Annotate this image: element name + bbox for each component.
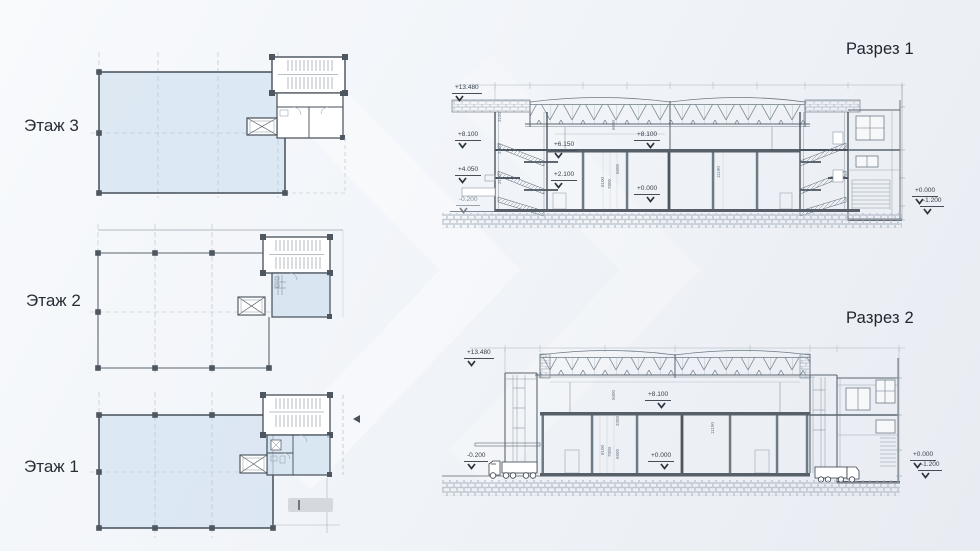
stairwell <box>260 234 333 276</box>
elevation-mark: +0.000 <box>648 453 674 470</box>
right-stair-tower <box>800 112 848 216</box>
dim-label: 6000 <box>611 120 616 130</box>
footprint-dashed <box>285 138 345 193</box>
stairwell <box>269 54 348 96</box>
dim-label: 3150 <box>497 112 502 122</box>
section-1-title: Разрез 1 <box>846 40 914 59</box>
elevation-mark: +13.480 <box>464 350 494 367</box>
elevation-value: -0.200 <box>456 197 480 206</box>
dim-label: 11190 <box>710 422 715 434</box>
elevation-value: +8.100 <box>634 132 660 141</box>
right-annex <box>848 100 902 221</box>
dim-label: 5000 <box>611 390 616 400</box>
annex-rooms <box>267 435 332 477</box>
elevation-value: +2.100 <box>551 172 577 181</box>
roof-truss <box>535 351 815 379</box>
annex-rooms <box>277 91 345 140</box>
truck-plan <box>288 498 333 512</box>
elevator-shaft <box>247 118 277 135</box>
elevator-shaft <box>238 297 265 315</box>
right-dim-line <box>896 358 902 483</box>
dim-label: 8100 <box>600 177 605 187</box>
elevation-mark: -0.200 <box>464 453 488 470</box>
dim-label: 3150 <box>497 144 502 154</box>
elevator-shaft <box>240 455 267 473</box>
elevation-value: +8.100 <box>645 392 671 401</box>
dim-label: 3150 <box>497 174 502 184</box>
section-1-drawing <box>440 80 980 235</box>
floor-3-label: Этаж 3 <box>24 116 79 136</box>
drawing-sheet: Этаж 3 Этаж 2 Этаж 1 <box>0 0 980 551</box>
elevation-mark: +0.000 <box>634 186 660 203</box>
elevation-mark: -0.200 <box>456 197 480 214</box>
elevation-value: -1.200 <box>918 462 942 471</box>
elevation-mark: +8.100 <box>455 132 481 149</box>
right-annex <box>837 358 900 484</box>
elevation-value: +8.100 <box>455 132 481 141</box>
elevation-mark: +13.480 <box>452 85 482 102</box>
elevation-mark: +8.100 <box>634 132 660 149</box>
floor-1-plan <box>88 388 368 543</box>
dim-label: 3300 <box>615 416 620 426</box>
elevation-mark: +6.150 <box>551 142 577 159</box>
floor-2-label: Этаж 2 <box>26 291 81 311</box>
annex-room <box>272 270 332 319</box>
elevation-value: +13.480 <box>452 85 482 94</box>
dim-label: 6600 <box>615 164 620 174</box>
dim-label: 6600 <box>615 449 620 459</box>
right-tower <box>810 375 837 476</box>
elevation-mark: +8.100 <box>645 392 671 409</box>
roof-truss <box>525 98 810 128</box>
dim-label: 7800 <box>607 447 612 457</box>
hall-structure <box>547 127 800 210</box>
elevation-value: +0.000 <box>910 452 936 461</box>
elevation-mark: +4.050 <box>455 167 481 184</box>
elevation-mark: -1.200 <box>920 198 944 215</box>
elevation-value: +13.480 <box>464 350 494 359</box>
dim-label: 8100 <box>600 445 605 455</box>
floor-3-plan <box>88 50 358 202</box>
ground <box>442 209 902 228</box>
elevation-value: -0.200 <box>464 453 488 462</box>
section-2-drawing <box>440 330 980 510</box>
section-cut-marker-icon <box>353 415 360 423</box>
stairwell <box>260 392 333 438</box>
elevation-value: +0.000 <box>912 188 938 197</box>
elevation-value: +6.150 <box>551 142 577 151</box>
dim-label: 11190 <box>716 166 721 178</box>
elevation-value: -1.200 <box>920 198 944 207</box>
elevation-value: +4.050 <box>455 167 481 176</box>
ground-hatch <box>442 480 900 496</box>
floor-1-label: Этаж 1 <box>24 457 79 477</box>
elevation-mark: +2.100 <box>551 172 577 189</box>
floor-2-plan <box>88 222 358 377</box>
dim-label: 7800 <box>607 179 612 189</box>
elevation-value: +0.000 <box>634 186 660 195</box>
elevation-mark: -1.200 <box>918 462 942 479</box>
elevation-value: +0.000 <box>648 453 674 462</box>
section-2-title: Разрез 2 <box>846 309 914 328</box>
